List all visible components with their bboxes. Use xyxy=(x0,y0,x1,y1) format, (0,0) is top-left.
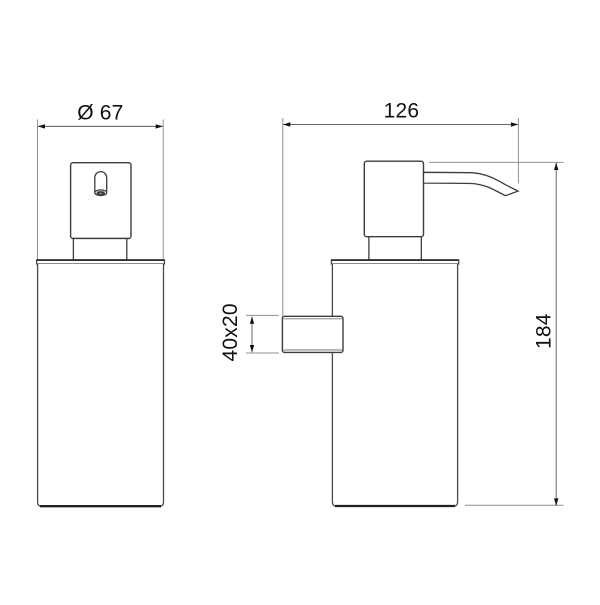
svg-text:126: 126 xyxy=(384,99,420,122)
svg-text:Ø 67: Ø 67 xyxy=(77,102,123,125)
svg-text:184: 184 xyxy=(532,313,555,349)
svg-text:40x20: 40x20 xyxy=(219,303,242,361)
